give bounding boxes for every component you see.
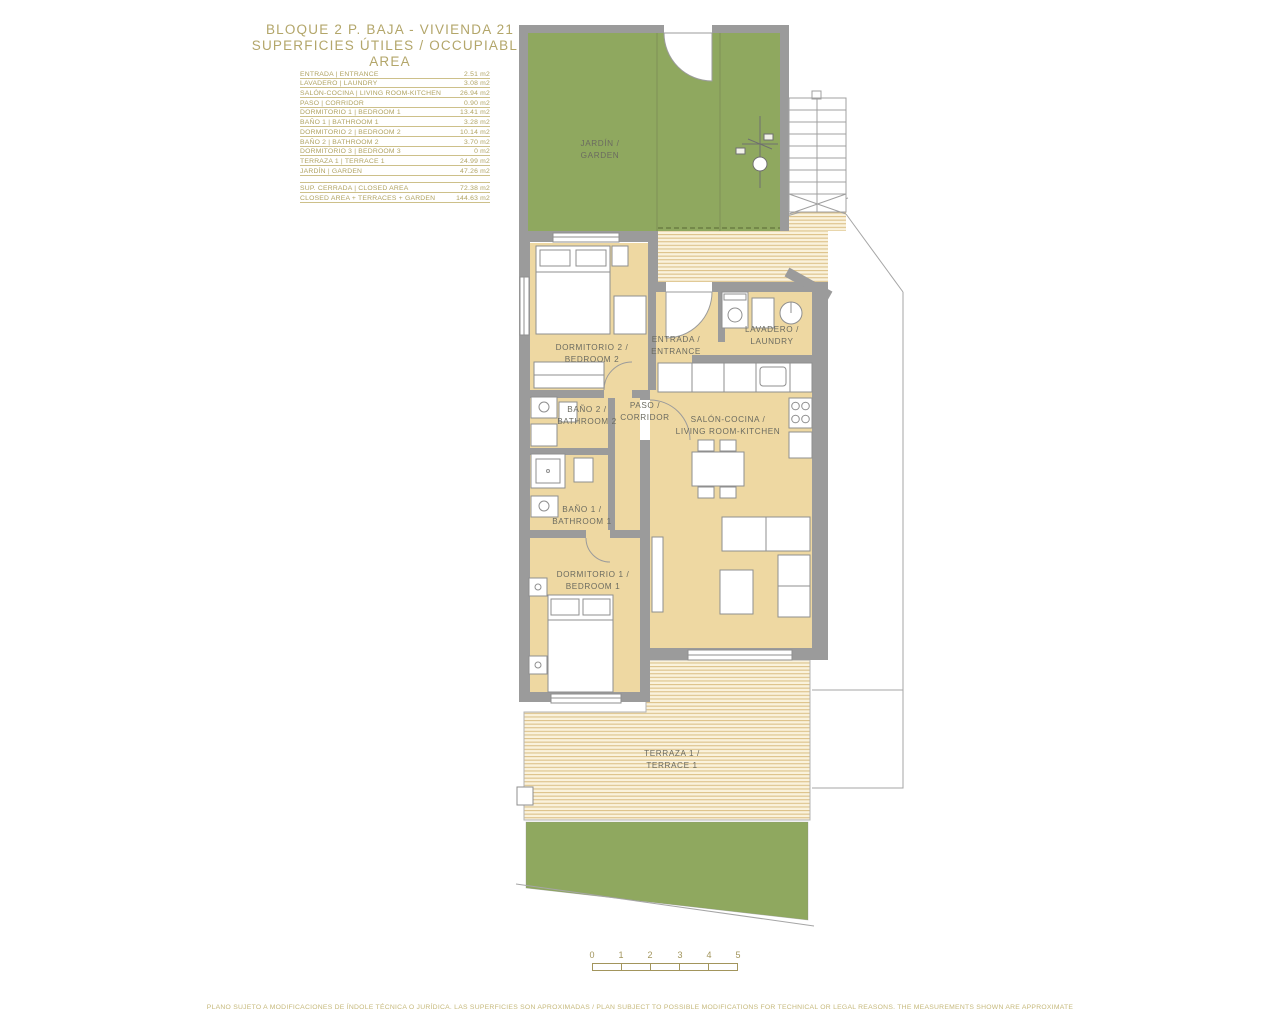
scale-bar-segment xyxy=(651,964,680,970)
closet-2 xyxy=(614,296,646,334)
label-living-1: SALÓN-COCINA / xyxy=(691,414,766,424)
scale-bar-segment xyxy=(680,964,709,970)
kitchen-counter xyxy=(658,363,812,392)
window-bedroom1 xyxy=(551,694,621,703)
label-bedroom1-1: DORMITORIO 1 / xyxy=(557,570,630,579)
label-corridor-1: PASO / xyxy=(630,401,660,410)
nightstand xyxy=(612,246,628,266)
label-entrance-2: ENTRANCE xyxy=(651,347,701,356)
scale-tick-label: 5 xyxy=(735,950,740,960)
scale-bar-segment xyxy=(622,964,651,970)
floor-plan-page: BLOQUE 2 P. BAJA - VIVIENDA 21 SUPERFICI… xyxy=(0,0,1280,1024)
window-bedroom2-top xyxy=(553,233,619,242)
label-laundry-1: LAVADERO / xyxy=(745,325,799,334)
label-living-2: LIVING ROOM-KITCHEN xyxy=(676,427,781,436)
window-living xyxy=(688,650,792,660)
washing-machine xyxy=(722,292,748,328)
label-laundry-2: LAUNDRY xyxy=(750,337,793,346)
label-terrace1-1: TERRAZA 1 / xyxy=(644,749,700,758)
nightstand-1b xyxy=(529,656,547,674)
laundry-appliance xyxy=(752,298,774,328)
label-garden-2: GARDEN xyxy=(581,151,620,160)
scale-bar-ruler xyxy=(592,963,738,971)
disclaimer-footer: PLANO SUJETO A MODIFICACIONES DE ÍNDOLE … xyxy=(0,1004,1280,1011)
floor-plan-drawing: JARDÍN / GARDEN DORMITORIO 2 / BEDROOM 2… xyxy=(0,0,1280,1024)
scale-tick-label: 2 xyxy=(647,950,652,960)
scale-tick-label: 0 xyxy=(589,950,594,960)
stairs xyxy=(789,91,846,214)
label-bedroom2-2: BEDROOM 2 xyxy=(565,355,620,364)
bed-2 xyxy=(536,246,610,334)
tv-unit xyxy=(652,537,663,612)
scale-bar-segment xyxy=(593,964,622,970)
scale-bar: 0 1 2 3 4 5 xyxy=(592,950,738,971)
terrace-utility-box xyxy=(517,787,533,805)
label-corridor-2: CORRIDOR xyxy=(620,413,669,422)
scale-bar-segment xyxy=(709,964,737,970)
scale-tick-label: 4 xyxy=(706,950,711,960)
label-bedroom1-2: BEDROOM 1 xyxy=(566,582,621,591)
scale-tick-label: 1 xyxy=(618,950,623,960)
label-bathroom2-1: BAÑO 2 / xyxy=(567,404,607,414)
stove xyxy=(789,398,812,428)
nightstand-1a xyxy=(529,578,547,596)
window-bedroom2-left xyxy=(520,277,529,335)
garden-bottom xyxy=(516,822,814,926)
fridge xyxy=(789,432,812,458)
label-bathroom2-2: BATHROOM 2 xyxy=(557,417,617,426)
scale-tick-label: 3 xyxy=(677,950,682,960)
label-bedroom2-1: DORMITORIO 2 / xyxy=(556,343,629,352)
label-bathroom1-1: BAÑO 1 / xyxy=(562,504,602,514)
garden-top xyxy=(528,33,786,231)
label-terrace1-2: TERRACE 1 xyxy=(646,761,697,770)
label-entrance-1: ENTRADA / xyxy=(652,335,701,344)
label-bathroom1-2: BATHROOM 1 xyxy=(552,517,612,526)
bed-1 xyxy=(548,595,613,692)
scale-bar-numbers: 0 1 2 3 4 5 xyxy=(592,950,738,961)
label-garden-1: JARDÍN / xyxy=(581,138,620,148)
